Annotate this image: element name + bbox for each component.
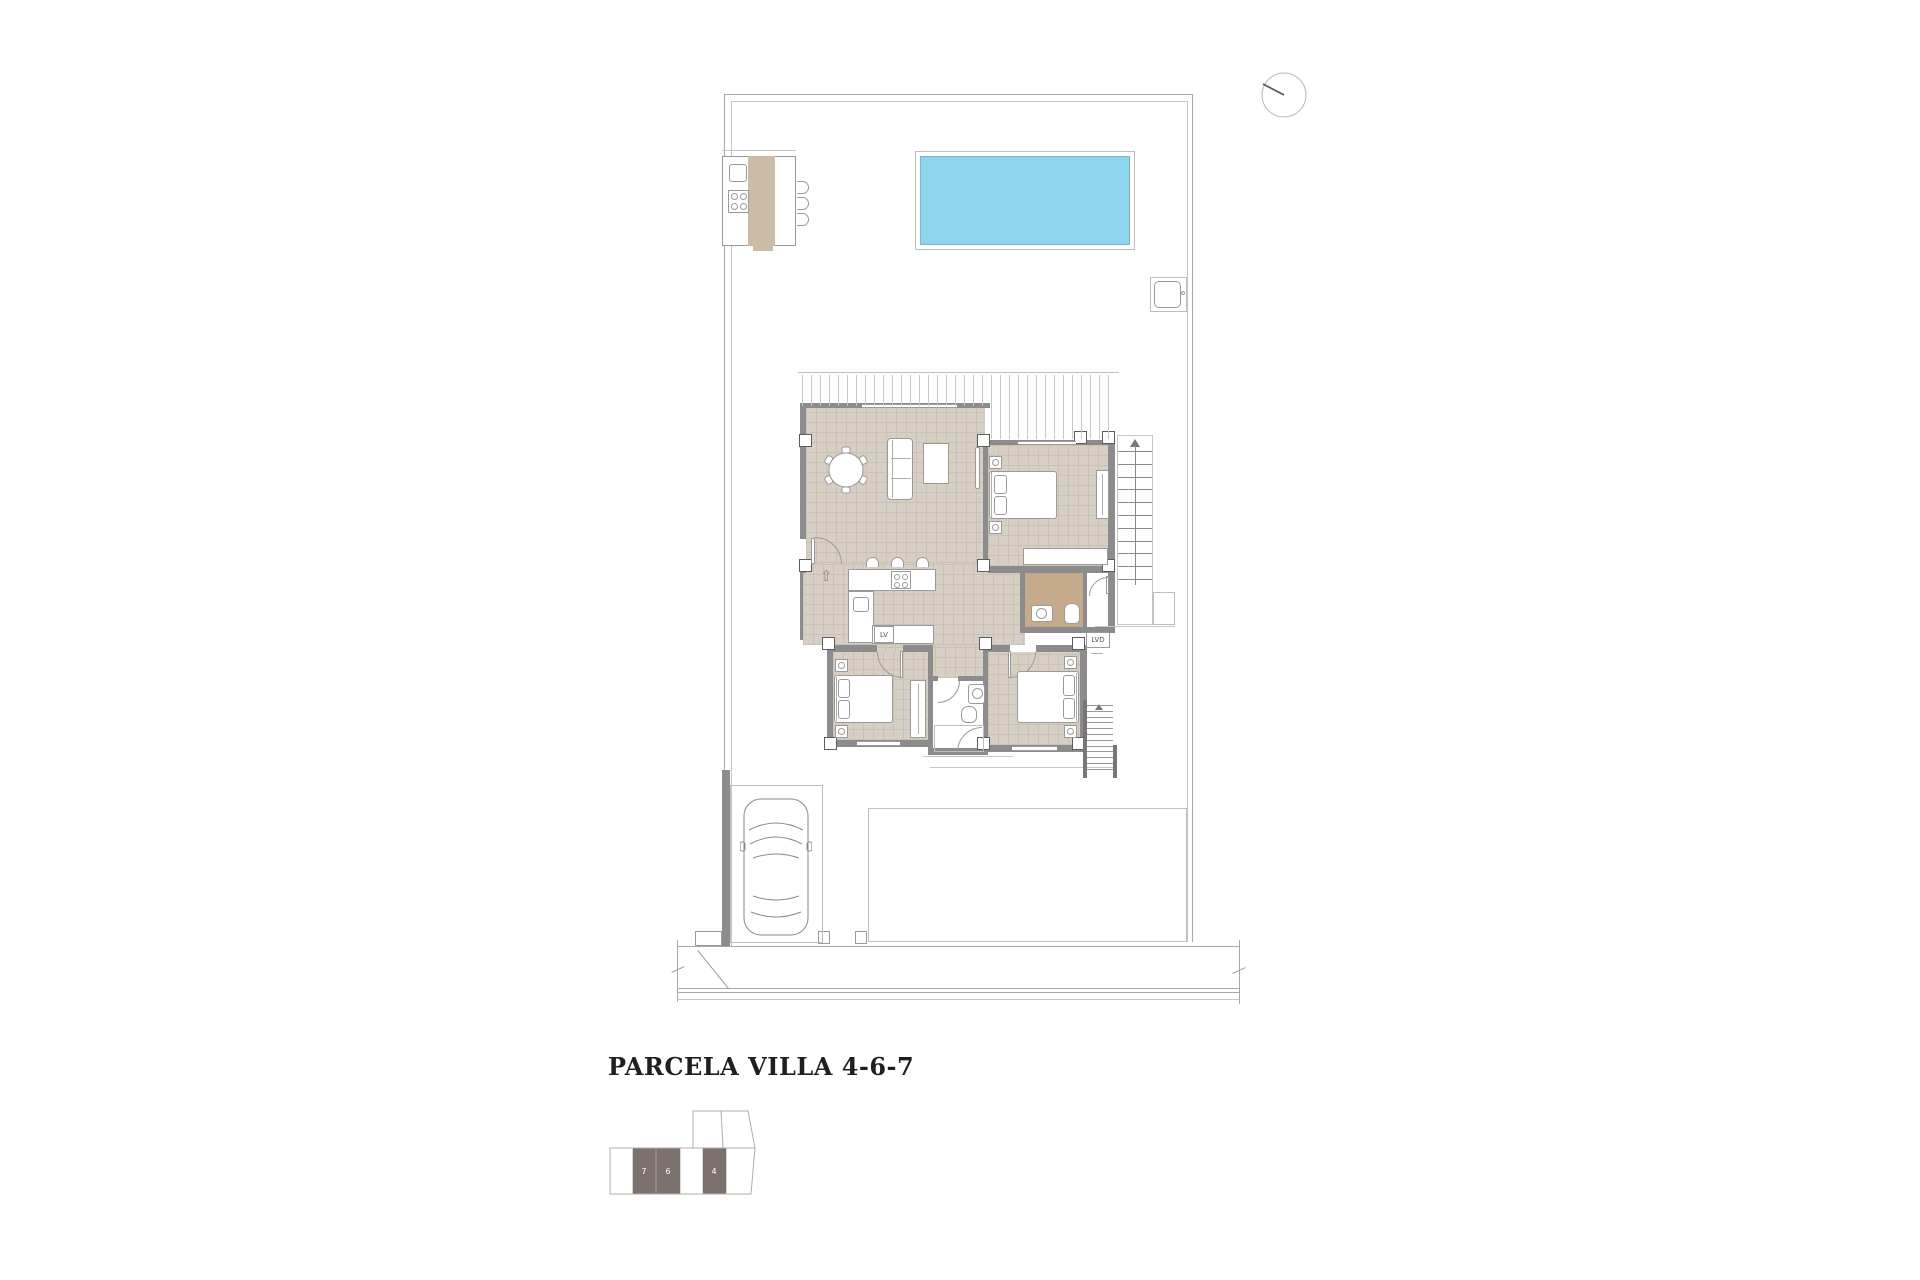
street-top-line <box>677 946 1240 947</box>
pergola-slat <box>802 375 803 406</box>
toilet <box>961 706 977 723</box>
table-top <box>829 453 863 487</box>
stair-tread <box>1118 464 1152 465</box>
stair-tread <box>1087 728 1113 729</box>
dishwasher-label: LV <box>880 631 888 639</box>
pergola-slat <box>811 375 812 406</box>
window-bedroom3 <box>1012 746 1057 751</box>
pergola-slat <box>901 375 902 406</box>
column <box>824 737 837 750</box>
parcel-boundary-top-inner <box>731 101 1187 102</box>
dining-table <box>822 446 870 494</box>
pergola-slat <box>883 375 884 406</box>
wall <box>827 652 833 748</box>
stair-tread <box>1118 553 1152 554</box>
wall <box>800 573 803 640</box>
wall <box>1020 573 1025 627</box>
pergola-slat <box>1072 375 1073 439</box>
keyplan-upper-block <box>693 1111 755 1148</box>
pergola-slat <box>1099 375 1100 439</box>
bbq-stool <box>797 181 809 194</box>
pergola-slat <box>1081 375 1082 439</box>
street-line-light <box>677 999 1240 1000</box>
kitchen-stool <box>891 557 904 567</box>
pergola-slat <box>982 375 983 406</box>
bbq-stool <box>797 213 809 226</box>
pergola-slat <box>847 375 848 406</box>
kitchen-stool <box>866 557 879 567</box>
basin <box>972 688 983 699</box>
basin <box>1036 608 1047 619</box>
door-swing-laundry <box>1089 577 1108 596</box>
coffee-table <box>923 443 949 484</box>
stair-tread <box>1118 477 1152 478</box>
lamp <box>838 662 845 669</box>
stair-tread <box>1118 541 1152 542</box>
built-in-wardrobe <box>1023 548 1108 565</box>
gate-pilaster <box>695 931 722 946</box>
gate-pilaster <box>855 931 867 944</box>
pergola-roof <box>798 372 1119 438</box>
wall <box>903 645 933 652</box>
compass-needle <box>1263 84 1284 95</box>
stair-tread <box>1087 717 1113 718</box>
pillow <box>838 700 850 719</box>
keyplan-unit-6-label: 6 <box>665 1167 670 1176</box>
kitchen-sink <box>853 597 869 612</box>
outdoor-shower-tray <box>1154 281 1181 308</box>
wall <box>983 435 988 570</box>
stair-tread <box>1118 566 1152 567</box>
pergola-slat <box>1063 375 1064 439</box>
car-roof-rear <box>753 896 799 900</box>
sofa <box>887 438 913 500</box>
outdoor-shower-valve <box>1181 291 1185 295</box>
pergola-slat <box>1009 375 1010 439</box>
stair-tread <box>1087 711 1113 712</box>
stair-tread <box>1118 489 1152 490</box>
keyplan-lower-block <box>610 1148 755 1194</box>
parcel-boundary-right <box>1192 94 1193 942</box>
bbq-worktop <box>748 156 775 246</box>
bed-headboard <box>836 677 837 721</box>
pergola-slat <box>919 375 920 406</box>
bbq-burner <box>740 203 747 210</box>
wall <box>928 652 933 753</box>
pergola-slat <box>829 375 830 406</box>
site-plan <box>0 0 1920 1280</box>
keyplan-unit-4-label: 4 <box>711 1167 716 1176</box>
wall <box>958 676 985 681</box>
terrace-step <box>923 756 1013 757</box>
stair-tread <box>1087 740 1113 741</box>
pergola-slat <box>973 375 974 406</box>
pergola-slat <box>1027 375 1028 439</box>
wall <box>988 566 1110 573</box>
patio <box>868 808 1187 942</box>
parcel-boundary-top <box>724 94 1192 95</box>
keyplan: 7 6 4 <box>605 1106 760 1198</box>
column <box>822 637 835 650</box>
dishwasher-box: LV <box>874 626 894 643</box>
stair-tread <box>1087 763 1113 764</box>
pillow <box>994 496 1007 515</box>
hob-burner <box>894 582 900 588</box>
stairs-upper <box>1117 435 1153 625</box>
pergola-slat <box>1090 375 1091 439</box>
pergola-slat <box>1054 375 1055 439</box>
north-compass-icon <box>1261 72 1307 118</box>
bbq-worktop-end <box>753 246 773 251</box>
pergola-slat <box>838 375 839 406</box>
pillow <box>994 475 1007 494</box>
car-body <box>744 799 808 935</box>
pergola-slat <box>1108 375 1109 439</box>
pergola-slat <box>874 375 875 406</box>
pillow <box>1063 675 1075 696</box>
bed-headboard <box>1076 673 1077 721</box>
car-hood-line <box>749 823 803 830</box>
stair-tread <box>1118 528 1152 529</box>
stair-tread <box>1087 769 1113 770</box>
pergola-slat <box>910 375 911 406</box>
sliding-door-living <box>975 447 980 489</box>
column <box>977 559 990 572</box>
gate-swing-diagonal <box>697 950 729 989</box>
stair-tread <box>1087 722 1113 723</box>
wall <box>1108 575 1115 633</box>
car-roof-front <box>753 854 799 858</box>
column <box>1072 637 1085 650</box>
stair-rail <box>1113 745 1117 778</box>
hob-burner <box>902 582 908 588</box>
entry-arrow-icon: ⇧ <box>820 569 833 584</box>
street-line <box>677 988 1240 989</box>
laundry-tick <box>1091 653 1103 654</box>
lamp <box>1067 728 1074 735</box>
pergola-slat <box>1000 375 1001 439</box>
pergola-slat <box>991 375 992 439</box>
garden-wall-left <box>722 770 730 947</box>
lamp <box>1067 659 1074 666</box>
street-line <box>677 992 1240 993</box>
lamp <box>992 524 999 531</box>
parcel-boundary-right-inner <box>1187 101 1188 942</box>
sofa-back <box>892 440 893 498</box>
wall <box>1108 433 1115 575</box>
car-top-view <box>740 796 812 938</box>
toilet <box>1064 603 1080 624</box>
break-mark-left <box>671 966 684 973</box>
window-bedroom1 <box>1018 441 1076 445</box>
pergola-slat <box>928 375 929 406</box>
street-end-left <box>677 940 678 1002</box>
street-end-right <box>1239 940 1240 1004</box>
stair-tread <box>1087 746 1113 747</box>
stair-tread <box>1087 705 1113 706</box>
stair-tread <box>1118 515 1152 516</box>
wall <box>1083 573 1087 627</box>
stair-tread <box>1087 734 1113 735</box>
stair-tread <box>1118 579 1152 580</box>
lamp <box>992 459 999 466</box>
stairs-lower <box>1083 700 1117 778</box>
terrace-corner <box>1153 592 1175 625</box>
terrace-edge-right <box>1095 626 1175 627</box>
bed-headboard <box>991 472 992 518</box>
bbq-sink <box>729 164 747 182</box>
stair-tread <box>1087 751 1113 752</box>
stair-tread <box>1087 757 1113 758</box>
window-bedroom2 <box>857 741 900 746</box>
sofa-seam <box>891 478 911 479</box>
hob-burner <box>902 574 908 580</box>
page-title: PARCELA VILLA 4-6-7 <box>608 1052 914 1081</box>
wardrobe-rail <box>918 684 919 734</box>
car-windshield <box>750 837 802 844</box>
pergola-slat <box>964 375 965 406</box>
stair-tread <box>1118 451 1152 452</box>
pergola-slat <box>955 375 956 406</box>
floor-plan-sheet: ⇧ LV LVD PARCELA VILLA 4-6-7 <box>0 0 1920 1280</box>
pergola-slat <box>946 375 947 406</box>
pergola-slat <box>865 375 866 406</box>
laundry-box: LVD <box>1086 632 1110 648</box>
swimming-pool <box>920 156 1130 245</box>
bbq-burner <box>731 203 738 210</box>
bbq-burner <box>740 193 747 200</box>
kitchen-stool <box>916 557 929 567</box>
sofa-seam <box>891 458 911 459</box>
bbq-burner <box>731 193 738 200</box>
hob-burner <box>894 574 900 580</box>
pergola-slat <box>1036 375 1037 439</box>
stair-tread <box>1118 502 1152 503</box>
pergola-slat <box>1045 375 1046 439</box>
pillow <box>1063 698 1075 719</box>
bbq-overhang <box>722 150 796 151</box>
car-rear-window <box>751 912 801 917</box>
pergola-slat <box>820 375 821 406</box>
column <box>979 637 992 650</box>
keyplan-unit-7-label: 7 <box>641 1167 646 1176</box>
door-swing-bathroom2 <box>938 681 960 703</box>
laundry-label: LVD <box>1091 636 1104 644</box>
pergola-slat <box>892 375 893 406</box>
wardrobe-rail <box>1102 474 1103 515</box>
pergola-slat <box>1018 375 1019 439</box>
bbq-stool <box>797 197 809 210</box>
pergola-slat <box>937 375 938 406</box>
pillow <box>838 679 850 698</box>
lamp <box>838 728 845 735</box>
pergola-slat <box>856 375 857 406</box>
